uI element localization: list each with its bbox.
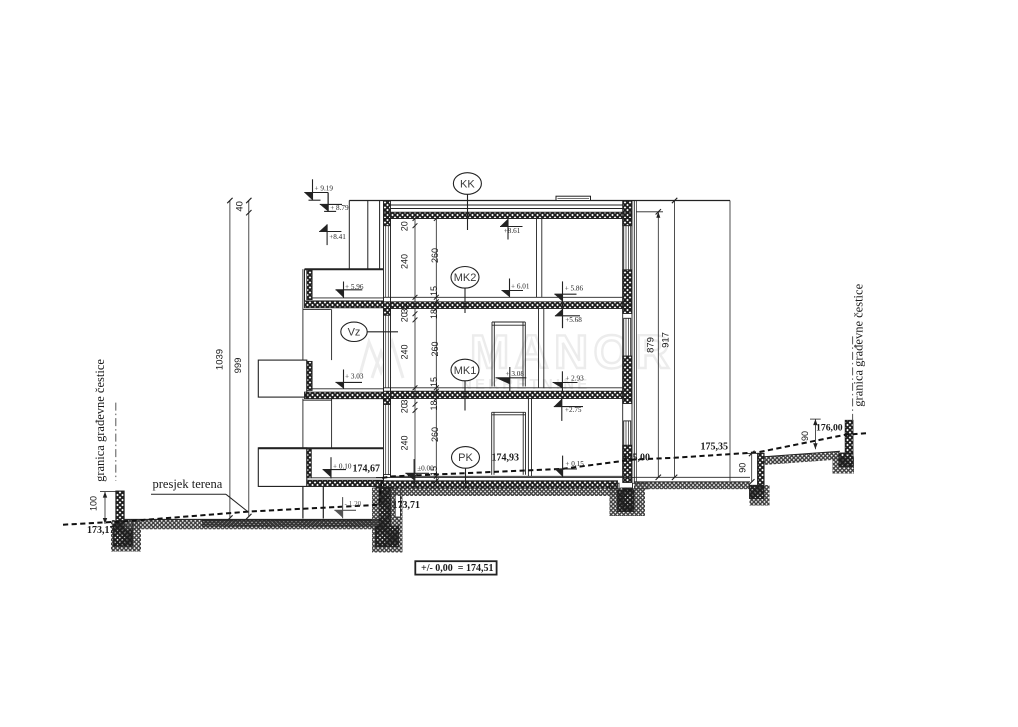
- svg-text:MANOR: MANOR: [470, 325, 675, 378]
- svg-text:+ 3.08: + 3.08: [506, 370, 525, 378]
- svg-text:15: 15: [429, 286, 439, 296]
- svg-text:100: 100: [89, 496, 99, 511]
- svg-text:240: 240: [400, 435, 410, 450]
- svg-text:+ 0.15: + 0.15: [565, 460, 584, 468]
- svg-text:173,17: 173,17: [87, 525, 115, 536]
- svg-text:917: 917: [661, 332, 672, 348]
- svg-text:MK2: MK2: [454, 272, 477, 284]
- svg-text:35: 35: [400, 303, 410, 313]
- svg-text:18: 18: [429, 400, 439, 410]
- svg-text:175,35: 175,35: [701, 442, 729, 453]
- svg-text:999: 999: [233, 358, 244, 374]
- svg-text:20: 20: [400, 403, 410, 413]
- svg-text:granica građevne čestice: granica građevne čestice: [93, 359, 107, 482]
- svg-text:+ 5.96: + 5.96: [345, 283, 364, 291]
- svg-text:174,67: 174,67: [353, 464, 381, 475]
- svg-text:+ 6.01: + 6.01: [511, 282, 530, 290]
- svg-text:260: 260: [430, 248, 440, 263]
- svg-text:KK: KK: [460, 178, 475, 190]
- svg-text:+8.61: +8.61: [504, 227, 521, 235]
- svg-text:35: 35: [400, 394, 410, 404]
- svg-text:+ 3.03: + 3.03: [345, 373, 364, 381]
- svg-text:15: 15: [429, 377, 439, 387]
- svg-text:+5.68: +5.68: [565, 316, 582, 324]
- svg-text:PK: PK: [458, 452, 473, 464]
- svg-text:240: 240: [400, 254, 410, 269]
- svg-text:90: 90: [737, 463, 747, 473]
- svg-text:20: 20: [400, 221, 410, 231]
- svg-text:18: 18: [429, 309, 439, 319]
- svg-text:174,93: 174,93: [492, 453, 520, 464]
- svg-text:+ 5.86: + 5.86: [565, 285, 584, 293]
- svg-text:Vz: Vz: [348, 327, 361, 339]
- svg-text:granica građevne čestice: granica građevne čestice: [852, 283, 866, 406]
- svg-text:+ 2.93: + 2.93: [565, 375, 584, 383]
- svg-text:+ 9.19: + 9.19: [315, 184, 334, 192]
- svg-text:presjek terena: presjek terena: [153, 477, 223, 491]
- svg-text:260: 260: [430, 427, 440, 442]
- svg-text:175,00: 175,00: [623, 452, 651, 463]
- svg-text:1039: 1039: [215, 349, 226, 370]
- svg-text:90: 90: [800, 431, 810, 441]
- svg-text:173,71: 173,71: [393, 500, 421, 511]
- svg-text:879: 879: [646, 337, 657, 353]
- svg-text:+ 0.10: + 0.10: [333, 463, 352, 471]
- svg-text:176,00: 176,00: [816, 422, 843, 433]
- svg-text:- 1.20: - 1.20: [345, 500, 362, 508]
- svg-text:+ 8.79: + 8.79: [330, 204, 349, 212]
- svg-text:40: 40: [235, 201, 246, 212]
- svg-text:MK1: MK1: [454, 365, 477, 377]
- svg-text:240: 240: [400, 344, 410, 359]
- svg-text:+8.41: +8.41: [329, 233, 346, 241]
- svg-text:±0.00: ±0.00: [417, 465, 434, 473]
- svg-text:260: 260: [430, 341, 440, 356]
- svg-text:+2.75: +2.75: [565, 406, 582, 414]
- svg-text:20: 20: [400, 312, 410, 322]
- svg-text:+/- 0,00 = 174,51: +/- 0,00 = 174,51: [421, 563, 494, 574]
